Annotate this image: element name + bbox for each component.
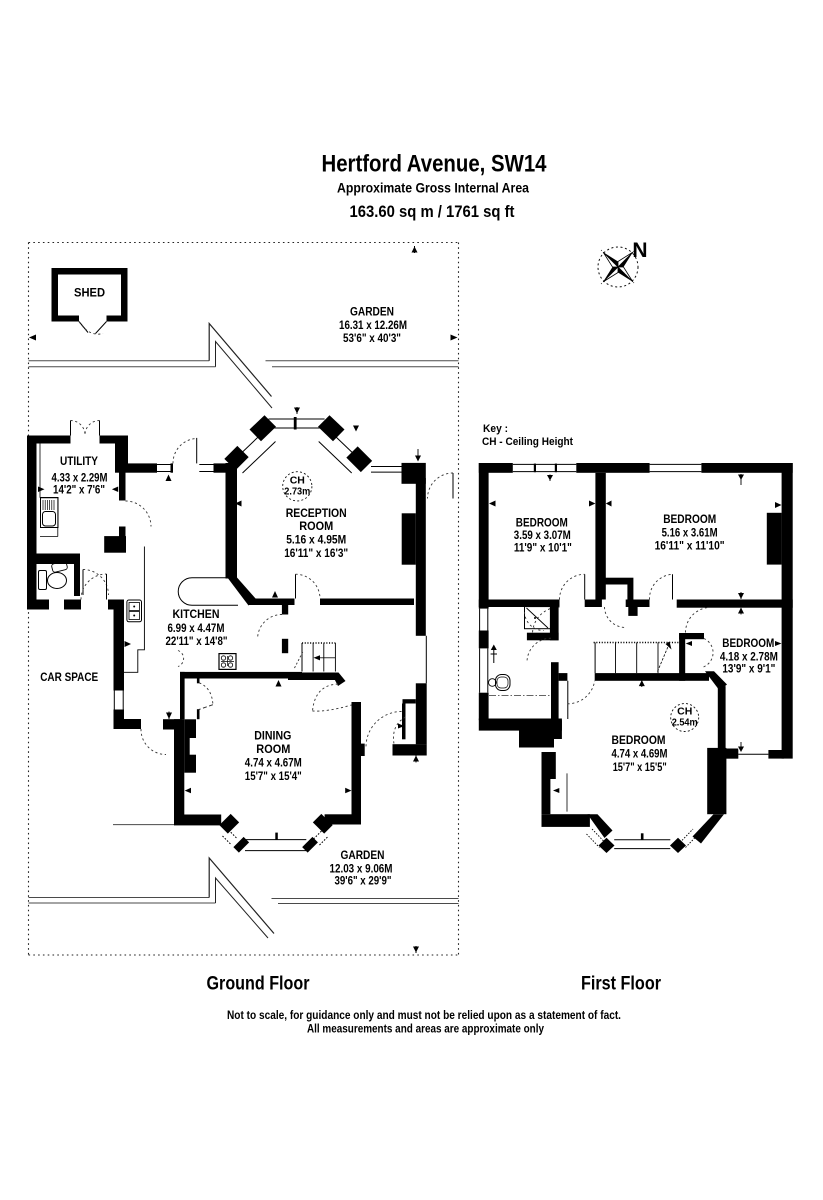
svg-text:53'6" x 40'3": 53'6" x 40'3" [343,333,401,345]
svg-text:3.59 x 3.07M: 3.59 x 3.07M [514,530,571,542]
svg-text:CH - Ceiling Height: CH - Ceiling Height [482,436,573,448]
svg-text:14'2" x 7'6": 14'2" x 7'6" [53,485,105,497]
svg-text:Key :: Key : [483,423,508,435]
svg-text:39'6" x 29'9": 39'6" x 29'9" [335,876,392,888]
svg-text:4.74 x 4.69M: 4.74 x 4.69M [612,749,668,761]
svg-text:GARDEN: GARDEN [350,307,394,319]
svg-text:163.60 sq m / 1761 sq ft: 163.60 sq m / 1761 sq ft [350,203,515,221]
svg-text:GARDEN: GARDEN [341,850,385,862]
svg-text:6.99 x 4.47M: 6.99 x 4.47M [168,623,225,635]
svg-text:16.31 x 12.26M: 16.31 x 12.26M [339,320,407,332]
svg-text:DINING: DINING [254,731,291,743]
svg-text:Approximate Gross Internal Are: Approximate Gross Internal Area [337,180,529,196]
svg-text:Hertford Avenue, SW14: Hertford Avenue, SW14 [322,151,548,178]
svg-text:Not to scale, for guidance onl: Not to scale, for guidance only and must… [227,1010,621,1022]
svg-text:UTILITY: UTILITY [60,456,98,468]
svg-text:5.16 x 4.95M: 5.16 x 4.95M [286,535,346,547]
svg-text:15'7" x 15'4": 15'7" x 15'4" [245,771,302,783]
svg-text:BEDROOM: BEDROOM [663,514,716,526]
svg-text:2.54m: 2.54m [672,717,698,729]
svg-text:12.03 x 9.06M: 12.03 x 9.06M [330,864,393,876]
svg-text:16'11" x 11'10": 16'11" x 11'10" [655,541,725,553]
svg-text:CAR SPACE: CAR SPACE [40,672,98,684]
svg-text:RECEPTION: RECEPTION [286,508,347,520]
svg-text:ROOM: ROOM [299,521,333,533]
svg-text:ROOM: ROOM [256,744,290,756]
svg-text:BEDROOM: BEDROOM [612,735,666,747]
svg-text:BEDROOM: BEDROOM [722,638,774,650]
svg-text:N: N [632,239,647,262]
svg-text:KITCHEN: KITCHEN [173,609,220,621]
svg-text:15'7" x 15'5": 15'7" x 15'5" [613,762,667,774]
svg-text:First Floor: First Floor [581,973,661,995]
svg-text:11'9" x 10'1": 11'9" x 10'1" [514,543,572,555]
svg-text:5.16 x 3.61M: 5.16 x 3.61M [662,528,718,540]
svg-text:16'11" x 16'3": 16'11" x 16'3" [284,548,348,560]
svg-text:13'9" x 9'1": 13'9" x 9'1" [722,664,775,676]
svg-text:4.33 x 2.29M: 4.33 x 2.29M [52,473,108,485]
svg-text:All measurements and areas are: All measurements and areas are approxima… [307,1024,545,1036]
svg-text:4.74 x 4.67M: 4.74 x 4.67M [245,758,302,770]
svg-text:BEDROOM: BEDROOM [516,518,568,530]
svg-text:SHED: SHED [74,288,105,300]
svg-text:4.18 x 2.78M: 4.18 x 2.78M [720,652,778,664]
svg-text:22'11" x 14'8": 22'11" x 14'8" [166,636,228,648]
svg-text:2.73m: 2.73m [284,486,310,498]
svg-text:Ground Floor: Ground Floor [207,973,310,995]
